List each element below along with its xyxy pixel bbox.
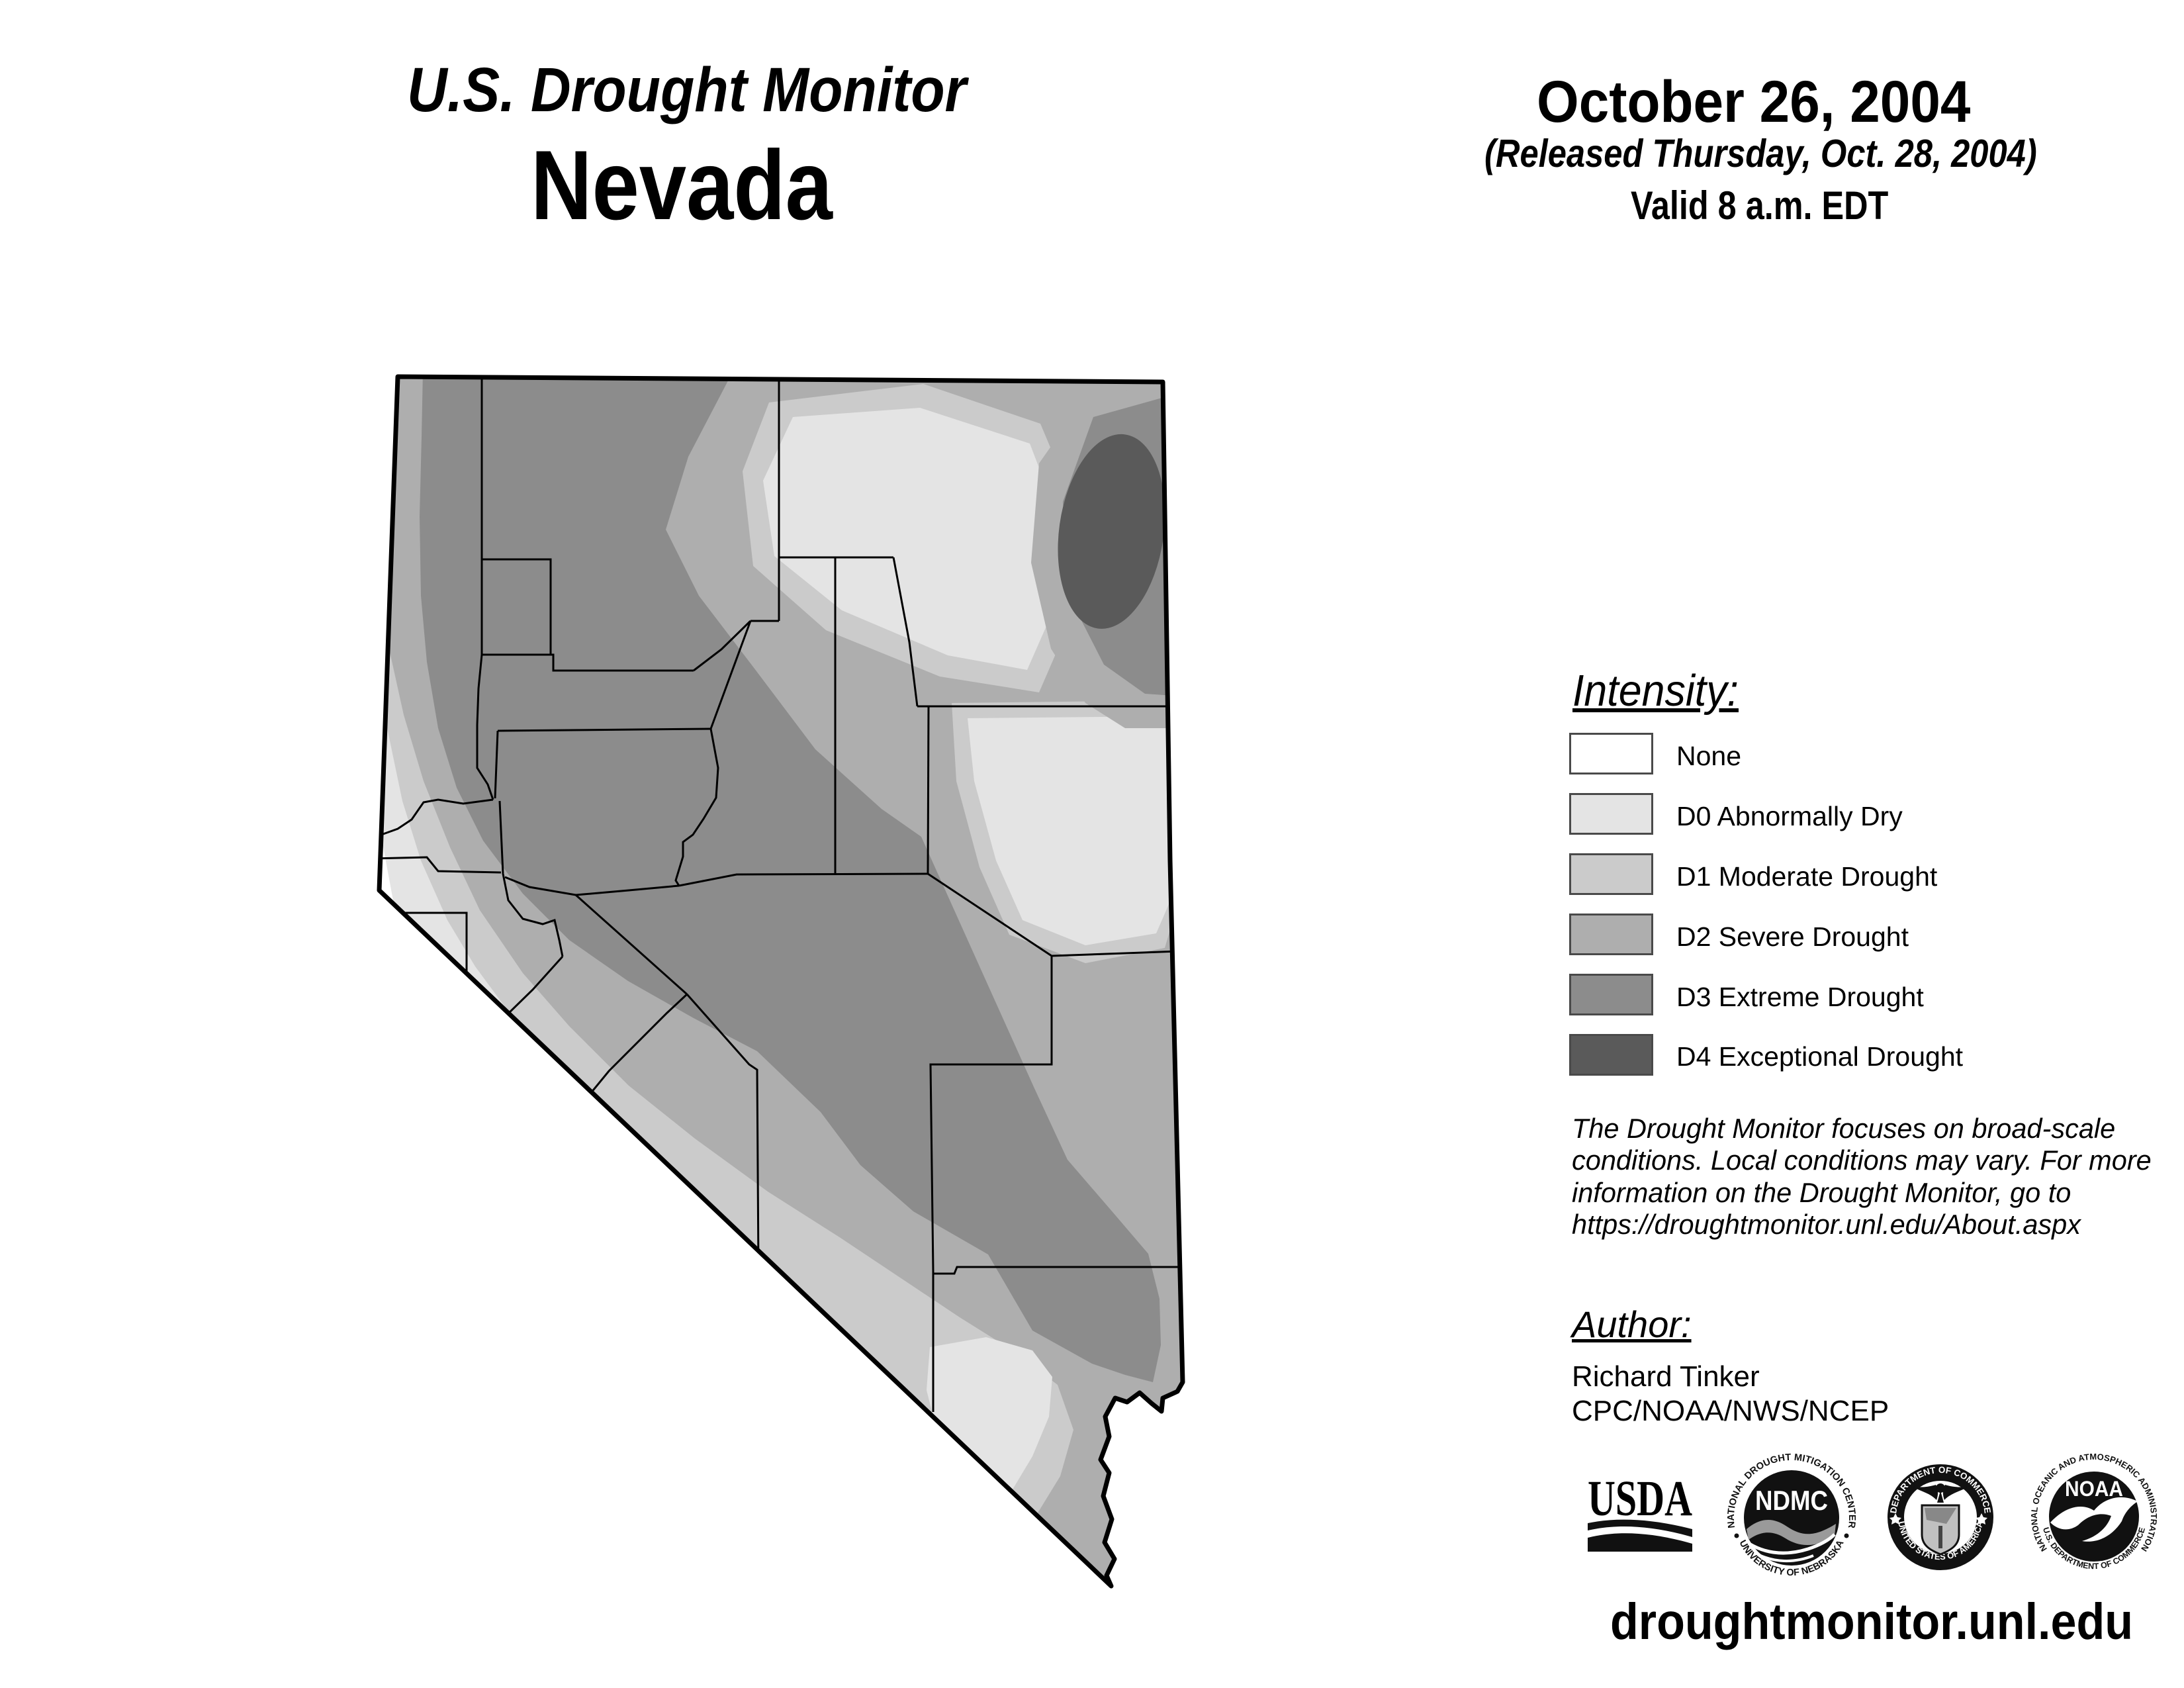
svg-text:NOAA: NOAA [2065,1477,2123,1501]
svg-text:NDMC: NDMC [1755,1485,1828,1516]
svg-text:USDA: USDA [1588,1471,1692,1526]
